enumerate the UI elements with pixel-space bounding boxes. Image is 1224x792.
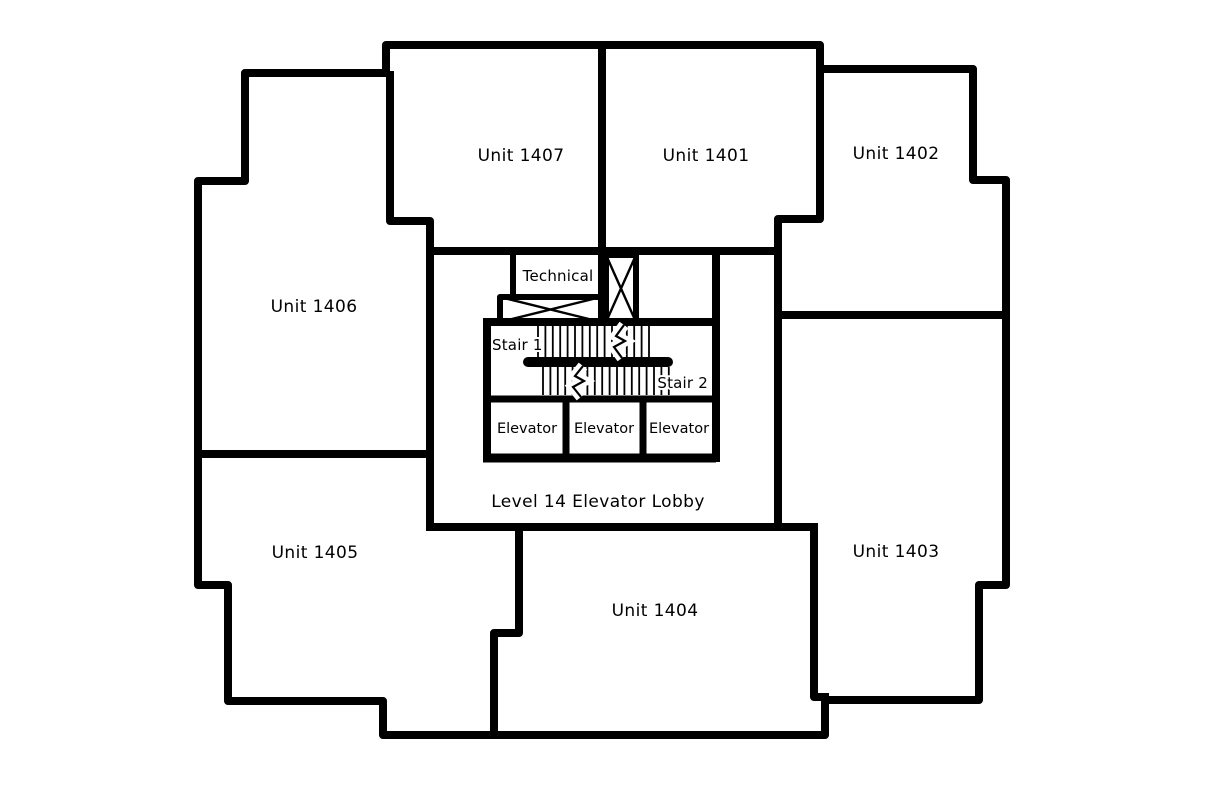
elevator-2-label: Elevator — [574, 421, 634, 437]
stair-2-label: Stair 2 — [657, 374, 708, 392]
elevator-lobby-label: Level 14 Elevator Lobby — [491, 492, 705, 512]
floor-plan-canvas: Unit 1407 Unit 1401 Unit 1402 Unit 1406 … — [0, 0, 1224, 792]
unit-1401-label: Unit 1401 — [663, 146, 750, 166]
unit-1404-label: Unit 1404 — [612, 601, 699, 621]
stair-1-label: Stair 1 — [492, 336, 543, 354]
unit-1406-label: Unit 1406 — [271, 297, 358, 317]
unit-1402-label: Unit 1402 — [853, 144, 940, 164]
unit-1403-label: Unit 1403 — [853, 542, 940, 562]
room-unit-1404 — [498, 531, 821, 731]
unit-1407-label: Unit 1407 — [478, 146, 565, 166]
elevator-1-label: Elevator — [497, 421, 557, 437]
floor-plan-svg: Unit 1407 Unit 1401 Unit 1402 Unit 1406 … — [0, 0, 1224, 792]
elevator-3-label: Elevator — [649, 421, 709, 437]
technical-label: Technical — [522, 267, 594, 285]
unit-1405-label: Unit 1405 — [272, 543, 359, 563]
